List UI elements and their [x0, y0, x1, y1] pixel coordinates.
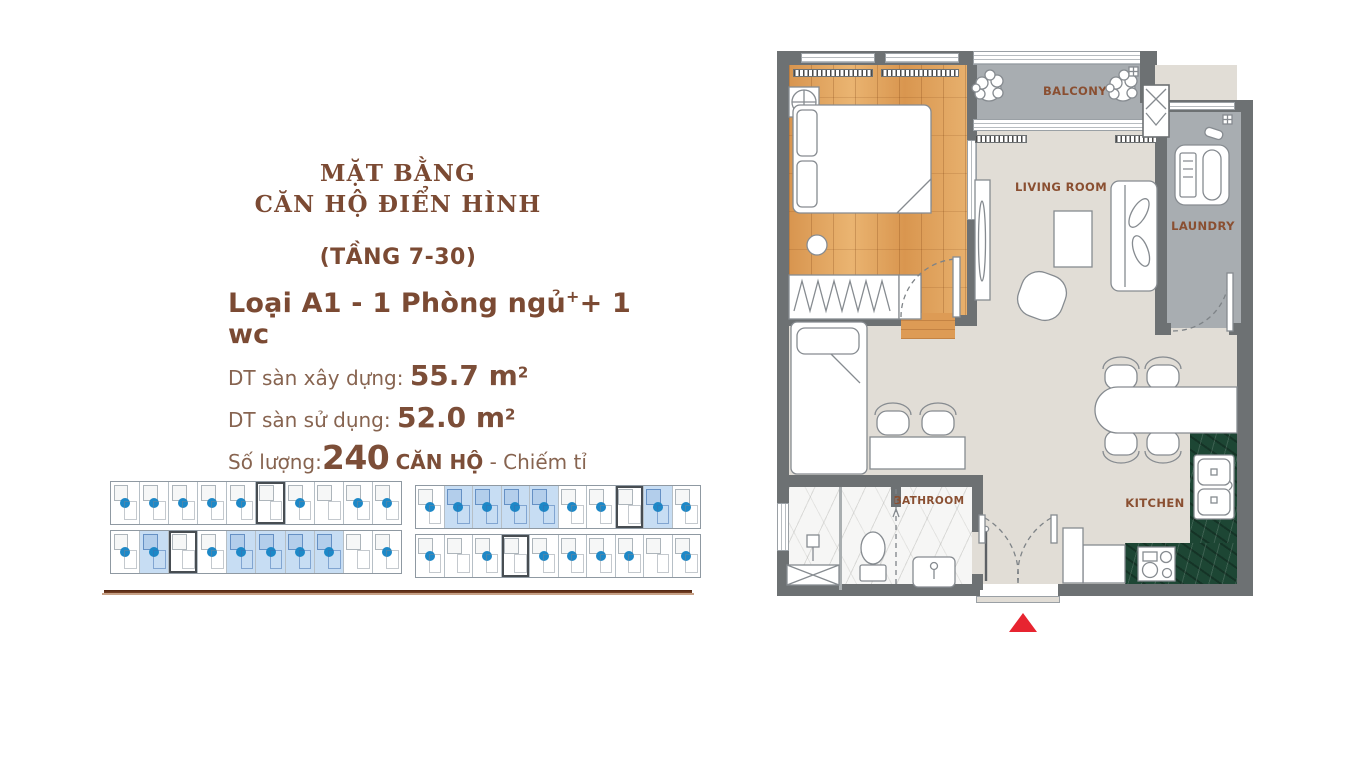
unit-marker-dot [236, 547, 246, 557]
site-plan-strip [110, 530, 402, 574]
coffee-table [1054, 211, 1092, 267]
fridge [1083, 545, 1125, 583]
site-plan-unit [673, 486, 701, 528]
site-plan-unit [530, 535, 559, 577]
armchair [1013, 267, 1072, 326]
gross-area-label: DT sàn xây dựng: [228, 366, 403, 390]
unit-marker-dot [382, 547, 392, 557]
entrance-doors [979, 515, 1057, 583]
unit-marker-dot [149, 547, 159, 557]
gross-area-value: 55.7 m [410, 359, 518, 392]
site-plan-unit [256, 531, 285, 573]
fixtures-overlay [777, 45, 1253, 602]
net-area-sup: 2 [505, 405, 515, 423]
site-plan-unit [111, 531, 140, 573]
site-plan-unit [559, 535, 588, 577]
gross-area-sup: 2 [518, 363, 528, 381]
site-plan-unit [445, 535, 474, 577]
site-plan-unit [673, 535, 701, 577]
balcony-plant-icon [972, 70, 1003, 101]
site-plan-unit [559, 486, 588, 528]
site-key-plan-right [415, 485, 701, 578]
unit-marker-dot [596, 551, 606, 561]
quantity-label: Số lượng: [228, 450, 322, 474]
site-plan-unit [373, 482, 401, 524]
bathroom-sliding-door [893, 489, 899, 587]
drain-icon-laundry [1223, 115, 1232, 124]
divider-line-shadow [102, 593, 694, 595]
unit-marker-dot [567, 551, 577, 561]
plan-title: MẶT BẰNG CĂN HỘ ĐIỂN HÌNH [228, 158, 568, 220]
site-plan-unit [227, 482, 256, 524]
unit-marker-dot [382, 498, 392, 508]
site-plan-unit [373, 531, 401, 573]
unit-marker-dot [149, 498, 159, 508]
net-area-label: DT sàn sử dụng: [228, 408, 391, 432]
site-plan-unit [111, 482, 140, 524]
single-bed [791, 322, 867, 474]
site-plan-unit [616, 486, 645, 528]
unit-marker-dot [482, 502, 492, 512]
bath-sink-icon [913, 557, 955, 587]
site-plan-strip [110, 481, 402, 525]
site-plan-unit [502, 535, 531, 577]
unit-marker-dot [207, 498, 217, 508]
site-plan-strip [415, 485, 701, 529]
desk-with-chairs [870, 403, 965, 469]
drain-icon [1129, 67, 1138, 76]
unit-marker-dot [482, 551, 492, 561]
site-plan-unit [169, 531, 198, 573]
unit-marker-dot [120, 547, 130, 557]
site-plan-strip [415, 534, 701, 578]
site-plan-unit [286, 482, 315, 524]
site-plan-unit [256, 482, 285, 524]
plan-title-line2: CĂN HỘ ĐIỂN HÌNH [228, 189, 568, 220]
unit-marker-dot [425, 551, 435, 561]
site-plan-unit [502, 486, 531, 528]
page-background: MẶT BẰNG CĂN HỘ ĐIỂN HÌNH (TẦNG 7-30) Lo… [0, 0, 1352, 759]
hall-cabinet [1063, 528, 1083, 583]
unit-marker-dot [324, 547, 334, 557]
unit-marker-dot [596, 502, 606, 512]
unit-marker-dot [681, 502, 691, 512]
unit-marker-dot [510, 502, 520, 512]
site-plan-unit [416, 535, 445, 577]
unit-marker-dot [295, 547, 305, 557]
shower-area [787, 535, 839, 585]
laundry-door-arc [1173, 273, 1233, 331]
floor-plan: MASTER BEDROOM BALCONY LIVING ROOM LAUND… [777, 45, 1253, 605]
unit-marker-dot [567, 502, 577, 512]
gross-area-line: DT sàn xây dựng: 55.7 m2 [228, 359, 668, 392]
unit-marker-dot [539, 551, 549, 561]
site-plan-unit [140, 531, 169, 573]
unit-marker-dot [539, 502, 549, 512]
site-plan-unit [616, 535, 645, 577]
site-plan-unit [473, 486, 502, 528]
site-plan-unit [315, 531, 344, 573]
unit-marker-dot [353, 498, 363, 508]
site-plan-unit [587, 486, 616, 528]
stove-icon [1138, 547, 1175, 581]
unit-marker-dot [624, 551, 634, 561]
site-plan-unit [315, 482, 344, 524]
site-plan-unit [169, 482, 198, 524]
stool [807, 235, 827, 255]
net-area-line: DT sàn sử dụng: 52.0 m2 [228, 401, 668, 434]
quantity-unit: CĂN HỘ [396, 450, 484, 474]
unit-marker-dot [207, 547, 217, 557]
unit-marker-dot [653, 502, 663, 512]
sofa [1111, 181, 1157, 291]
tv-cabinet [975, 180, 990, 300]
quantity-value: 240 [322, 438, 389, 477]
floors-range: (TẦNG 7-30) [228, 245, 568, 270]
site-plan-unit [445, 486, 474, 528]
site-plan-unit [587, 535, 616, 577]
info-panel: MẶT BẰNG CĂN HỘ ĐIỂN HÌNH (TẦNG 7-30) Lo… [228, 158, 668, 516]
unit-marker-dot [120, 498, 130, 508]
unit-marker-dot [236, 498, 246, 508]
shaft-x-icon [1143, 85, 1169, 137]
unit-type-line: Loại A1 - 1 Phòng ngủ++ 1 wc [228, 287, 668, 350]
unit-marker-dot [681, 551, 691, 561]
unit-marker-dot [178, 498, 188, 508]
site-plan-unit [344, 482, 373, 524]
unit-marker-dot [453, 502, 463, 512]
site-plan-unit [644, 486, 673, 528]
site-plan-unit [198, 531, 227, 573]
dining-set [1095, 357, 1237, 463]
site-plan-unit [227, 531, 256, 573]
unit-marker-dot [295, 498, 305, 508]
master-bed [793, 105, 931, 213]
entrance-marker-arrow [1009, 613, 1037, 632]
site-plan-unit [140, 482, 169, 524]
unit-type-text: Loại A1 - 1 Phòng ngủ [228, 288, 566, 319]
unit-type-sup: + [566, 287, 580, 306]
unit-marker-dot [425, 502, 435, 512]
site-key-plan-left [110, 481, 402, 574]
site-plan-unit [286, 531, 315, 573]
unit-marker-dot [266, 547, 276, 557]
kitchen-sink-icon [1194, 455, 1234, 519]
net-area-value: 52.0 m [397, 401, 505, 434]
washing-machine-icon [1175, 145, 1229, 205]
site-plan-unit [198, 482, 227, 524]
site-plan-unit [530, 486, 559, 528]
toilet-icon [860, 532, 886, 581]
plan-title-line1: MẶT BẰNG [228, 158, 568, 189]
site-plan-unit [344, 531, 373, 573]
site-plan-unit [416, 486, 445, 528]
site-plan-unit [473, 535, 502, 577]
laundry-item [1204, 126, 1224, 140]
site-plan-unit [644, 535, 673, 577]
